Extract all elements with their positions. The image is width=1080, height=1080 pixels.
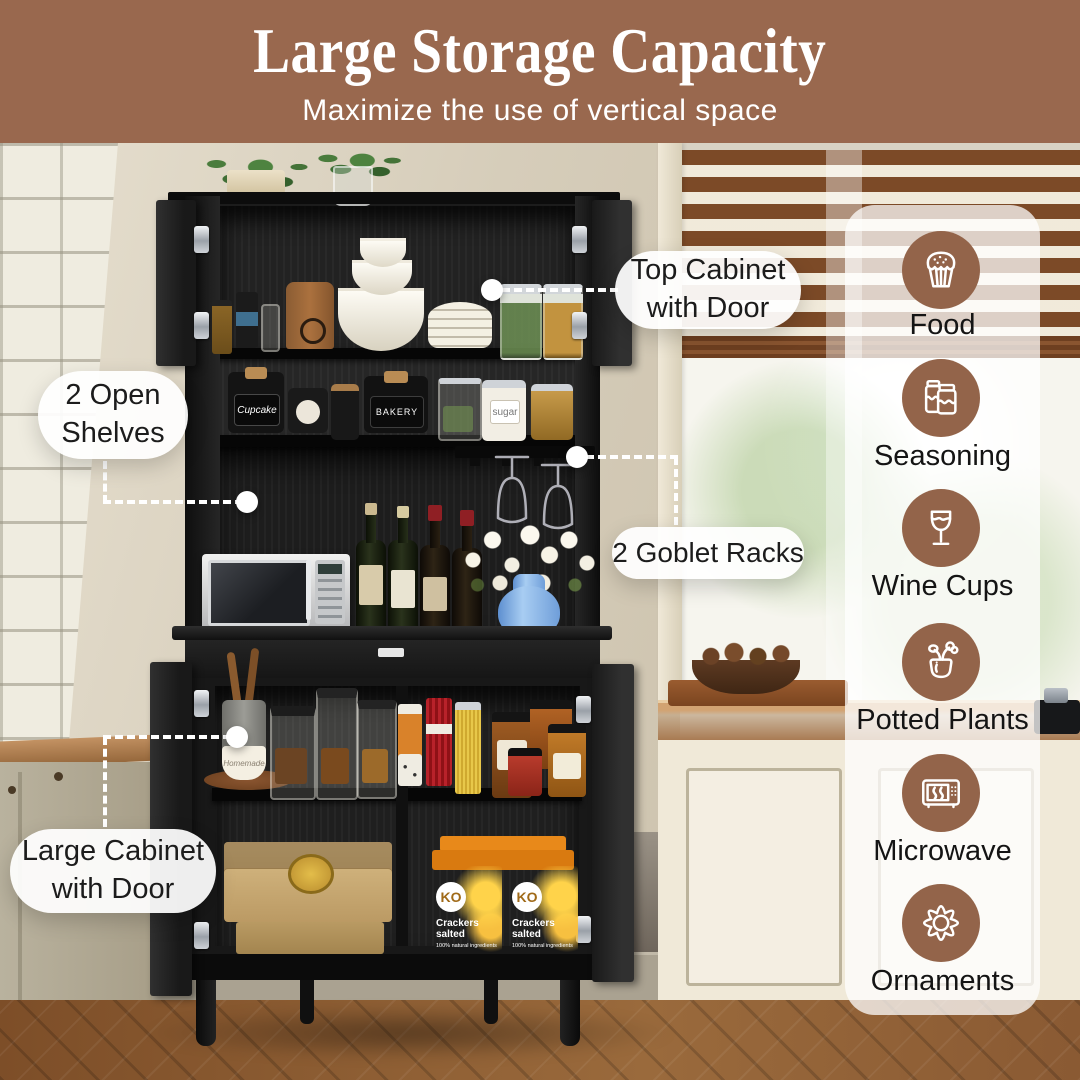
door-knob xyxy=(54,772,63,781)
leader-line xyxy=(103,500,243,504)
callout-large-cabinet: Large Cabinet with Door xyxy=(10,829,216,913)
saucepan xyxy=(1044,688,1068,703)
cabinet-leg xyxy=(560,978,580,1046)
box-title-line1: Crackers xyxy=(512,918,555,930)
bag-logo xyxy=(300,318,326,344)
feature-circle-ornaments xyxy=(902,884,980,962)
leader-line xyxy=(674,457,678,525)
goblet-rack-hook xyxy=(470,458,480,466)
door-hinge xyxy=(194,690,209,717)
feature-circle-food xyxy=(902,231,980,309)
feature-label-wine-cups: Wine Cups xyxy=(845,570,1040,603)
base-rail xyxy=(190,954,600,980)
clip-jar xyxy=(438,378,482,441)
spice-jar xyxy=(236,292,258,348)
cocoa-contents xyxy=(275,748,307,784)
honey-jar xyxy=(531,384,573,440)
microwave-control-panel xyxy=(315,560,345,624)
plate-stack xyxy=(428,302,492,348)
microwave-window xyxy=(208,560,310,626)
box-note: 100% natural ingredients xyxy=(436,943,497,949)
pantry-jar xyxy=(288,388,328,433)
door-hinge xyxy=(572,312,587,339)
box-title-line2: salted xyxy=(512,929,541,940)
door-hinge xyxy=(194,922,209,949)
ko-chips-box: KO Crackers salted 100% natural ingredie… xyxy=(428,866,502,952)
jar-label: sugar xyxy=(490,400,520,424)
window-frame xyxy=(658,143,682,705)
cupcake-icon xyxy=(918,247,964,293)
door-hinge xyxy=(572,226,587,253)
paper-bag xyxy=(286,282,334,349)
walnuts xyxy=(696,642,796,668)
marmalade-jar xyxy=(548,724,586,797)
gold-storage-box xyxy=(236,922,384,954)
wine-glass-icon xyxy=(918,505,964,551)
cabinet-door-panel xyxy=(686,768,842,986)
feature-circle-wine-cups xyxy=(902,489,980,567)
product-infographic: Large Storage Capacity Maximize the use … xyxy=(0,0,1080,1080)
microwave-handle xyxy=(306,560,311,620)
speckled-jar xyxy=(398,754,422,786)
jam-label xyxy=(553,753,581,779)
herb-jar xyxy=(500,284,542,360)
homemade-bowl: Homemade xyxy=(222,746,266,780)
feature-circle-microwave xyxy=(902,754,980,832)
door-hinge xyxy=(194,312,209,339)
glass-canister xyxy=(357,700,397,799)
glass-canister xyxy=(316,688,358,800)
pantry-jar: BAKERY xyxy=(364,376,428,433)
cabinet-leg xyxy=(196,978,216,1046)
door-knob xyxy=(8,786,16,794)
microwave xyxy=(202,554,350,632)
top-cabinet-left-door xyxy=(156,200,196,366)
jam-jar xyxy=(508,748,542,796)
door-hinge xyxy=(194,226,209,253)
pantry-jar: Cupcake xyxy=(228,372,284,433)
drawer-handle xyxy=(378,648,404,657)
leader-dot xyxy=(226,726,248,748)
bottle-capsule xyxy=(397,506,409,518)
page-title: Large Storage Capacity xyxy=(253,15,826,88)
lower-right-door xyxy=(592,664,634,982)
bottle-capsule xyxy=(365,503,377,515)
microwave-buttons xyxy=(318,579,342,619)
header-banner: Large Storage Capacity Maximize the use … xyxy=(0,0,1080,143)
leader-line xyxy=(502,288,618,292)
microwave-display xyxy=(318,564,342,574)
leader-dot xyxy=(481,279,503,301)
herb-contents xyxy=(443,406,473,432)
jar-label: BAKERY xyxy=(370,396,424,428)
box-title-line1: Crackers xyxy=(436,918,479,930)
cabinet-top-board xyxy=(168,192,620,204)
bottle-label xyxy=(423,577,447,611)
feature-label-seasoning: Seasoning xyxy=(845,440,1040,473)
ko-badge: KO xyxy=(512,882,542,912)
cooktop xyxy=(1034,700,1080,734)
bottle-label xyxy=(359,565,383,605)
box-note: 100% natural ingredients xyxy=(512,943,573,949)
flower-icon xyxy=(918,900,964,946)
round-label xyxy=(296,400,320,424)
spice-jar xyxy=(212,300,232,354)
wine-bottle xyxy=(356,540,386,632)
counter-top xyxy=(172,626,612,640)
callout-open-shelves: 2 Open Shelves xyxy=(38,371,188,459)
microwave-icon xyxy=(918,770,964,816)
floor-shadow xyxy=(140,1006,680,1060)
door-hinge xyxy=(576,916,591,943)
leader-line xyxy=(103,737,107,827)
pantry-jar xyxy=(331,384,359,440)
leader-line xyxy=(103,461,107,503)
leader-line xyxy=(586,455,678,459)
door-hinge xyxy=(576,696,591,723)
chili-container xyxy=(426,698,452,786)
container-band xyxy=(426,724,452,734)
bottle-capsule xyxy=(428,505,442,521)
feature-label-microwave: Microwave xyxy=(845,835,1040,868)
feature-label-potted-plants: Potted Plants xyxy=(845,704,1040,737)
ko-chips-box: KO Crackers salted 100% natural ingredie… xyxy=(504,866,578,952)
feature-label-food: Food xyxy=(845,309,1040,342)
wine-bottle xyxy=(388,540,418,632)
jar-label: Cupcake xyxy=(234,394,280,426)
callout-top-cabinet: Top Cabinet with Door xyxy=(615,251,801,329)
seasoning-jars-icon xyxy=(918,375,964,421)
leader-dot xyxy=(566,446,588,468)
page-subtitle: Maximize the use of vertical space xyxy=(302,94,778,128)
feature-panel: Food Seasoning xyxy=(845,205,1040,1015)
spaghetti-container xyxy=(455,702,481,794)
feature-circle-seasoning xyxy=(902,359,980,437)
leader-line xyxy=(103,735,231,739)
box-title-line2: salted xyxy=(436,929,465,940)
drawer-face xyxy=(185,640,600,678)
feature-label-ornaments: Ornaments xyxy=(845,965,1040,998)
callout-goblet-racks: 2 Goblet Racks xyxy=(612,527,804,579)
sugar-jar: sugar xyxy=(482,380,526,441)
ko-badge: KO xyxy=(436,882,466,912)
cork-lid xyxy=(245,367,267,379)
potted-plant-icon xyxy=(918,639,964,685)
cocoa-jar xyxy=(270,706,316,800)
leader-dot xyxy=(236,491,258,513)
gold-storage-box xyxy=(224,842,392,922)
canister-contents xyxy=(321,748,349,784)
canister-contents xyxy=(362,749,388,783)
wine-bottle xyxy=(420,545,450,632)
ornate-clasp xyxy=(288,854,334,894)
bottle-label xyxy=(391,570,415,608)
jar-label xyxy=(236,312,258,326)
glass-jar xyxy=(261,304,280,352)
feature-circle-potted-plants xyxy=(902,623,980,701)
cork-lid xyxy=(384,371,408,383)
